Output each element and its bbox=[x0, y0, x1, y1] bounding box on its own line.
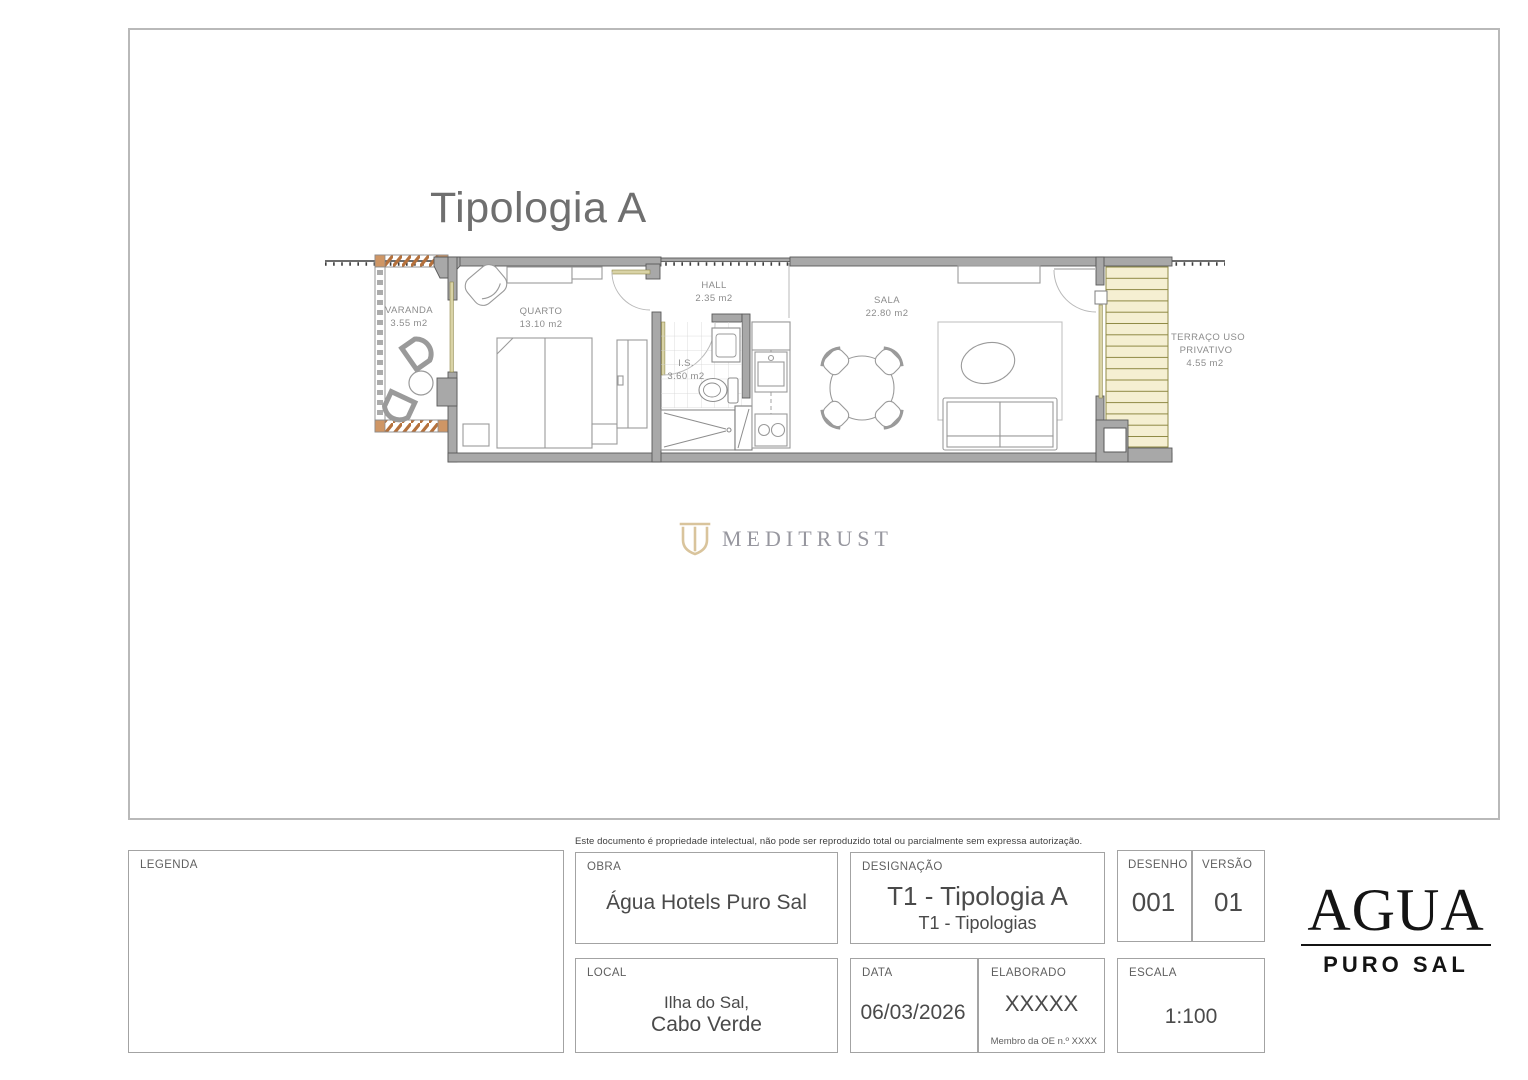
bedroom-furniture bbox=[461, 261, 647, 448]
local-box: LOCAL Ilha do Sal, Cabo Verde bbox=[575, 958, 838, 1053]
coffee-table bbox=[957, 337, 1019, 389]
balcony-furniture bbox=[381, 335, 436, 424]
meditrust-watermark: MEDITRUST bbox=[678, 518, 893, 560]
room-label-varanda: VARANDA bbox=[385, 305, 433, 316]
legenda-box: LEGENDA bbox=[128, 850, 564, 1053]
agua-logo-subtitle: PURO SAL bbox=[1290, 952, 1502, 978]
room-label-quarto: QUARTO bbox=[520, 306, 563, 317]
escala-label: ESCALA bbox=[1129, 967, 1177, 979]
room-label-terraco-1: TERRAÇO USO bbox=[1171, 332, 1245, 343]
room-area-varanda: 3.55 m2 bbox=[390, 318, 427, 329]
designacao-label: DESIGNAÇÃO bbox=[862, 861, 943, 873]
escala-box: ESCALA 1:100 bbox=[1117, 958, 1265, 1053]
local-line2: Cabo Verde bbox=[576, 1013, 837, 1037]
room-area-quarto: 13.10 m2 bbox=[520, 319, 563, 330]
meditrust-logo-text: MEDITRUST bbox=[722, 526, 893, 552]
sofa bbox=[943, 398, 1057, 450]
nightstand-left bbox=[463, 424, 489, 446]
floor-plan-drawing: VARANDA 3.55 m2 QUARTO 13.10 m2 HALL 2.3… bbox=[320, 240, 1250, 475]
meditrust-logo-icon bbox=[678, 520, 712, 558]
plan-title: Tipologia A bbox=[430, 184, 647, 233]
room-area-sala: 22.80 m2 bbox=[866, 308, 909, 319]
desenho-versao-box: DESENHO VERSÃO 001 01 bbox=[1117, 850, 1265, 942]
legenda-label: LEGENDA bbox=[140, 859, 198, 871]
obra-value: Água Hotels Puro Sal bbox=[576, 891, 837, 915]
desenho-value: 001 bbox=[1118, 887, 1189, 918]
desenho-label: DESENHO bbox=[1128, 859, 1188, 871]
room-label-hall: HALL bbox=[701, 280, 726, 291]
elaborado-value: XXXXX bbox=[979, 991, 1104, 1017]
toilet bbox=[699, 378, 738, 403]
elaborado-label: ELABORADO bbox=[991, 967, 1066, 979]
data-label: DATA bbox=[862, 967, 893, 979]
kitchen bbox=[752, 322, 790, 448]
dining-set bbox=[818, 344, 905, 431]
room-label-terraco-2: PRIVATIVO bbox=[1180, 345, 1233, 356]
local-line1: Ilha do Sal, bbox=[576, 993, 837, 1013]
room-label-is: I.S. bbox=[678, 358, 694, 369]
agua-logo: AGUA PURO SAL bbox=[1290, 880, 1502, 978]
shower bbox=[661, 410, 735, 450]
escala-value: 1:100 bbox=[1118, 1005, 1264, 1029]
data-value: 06/03/2026 bbox=[851, 1001, 975, 1025]
armchair bbox=[461, 261, 511, 310]
living-room-furniture bbox=[818, 266, 1062, 450]
designacao-box: DESIGNAÇÃO T1 - Tipologia A T1 - Tipolog… bbox=[850, 852, 1105, 944]
data-elaborado-box: DATA ELABORADO 06/03/2026 XXXXX Membro d… bbox=[850, 958, 1105, 1053]
agua-logo-rule bbox=[1301, 944, 1491, 946]
sideboard bbox=[958, 266, 1040, 283]
copyright-notice: Este documento é propriedade intelectual… bbox=[575, 836, 1082, 847]
nightstand-right bbox=[592, 424, 617, 444]
designacao-subvalue: T1 - Tipologias bbox=[851, 913, 1104, 934]
agua-logo-name: AGUA bbox=[1290, 880, 1502, 940]
designacao-value: T1 - Tipologia A bbox=[851, 881, 1104, 912]
obra-label: OBRA bbox=[587, 861, 621, 873]
terrace-window bbox=[1104, 428, 1126, 452]
elaborado-note: Membro da OE n.º XXXX bbox=[991, 1036, 1097, 1047]
obra-box: OBRA Água Hotels Puro Sal bbox=[575, 852, 838, 944]
versao-label: VERSÃO bbox=[1202, 859, 1252, 871]
room-label-sala: SALA bbox=[874, 295, 900, 306]
bathroom-fixtures bbox=[661, 322, 752, 450]
versao-value: 01 bbox=[1193, 887, 1264, 918]
room-area-hall: 2.35 m2 bbox=[695, 293, 732, 304]
local-label: LOCAL bbox=[587, 967, 627, 979]
room-area-terraco: 4.55 m2 bbox=[1186, 358, 1223, 369]
room-area-is: 3.60 m2 bbox=[667, 371, 704, 382]
